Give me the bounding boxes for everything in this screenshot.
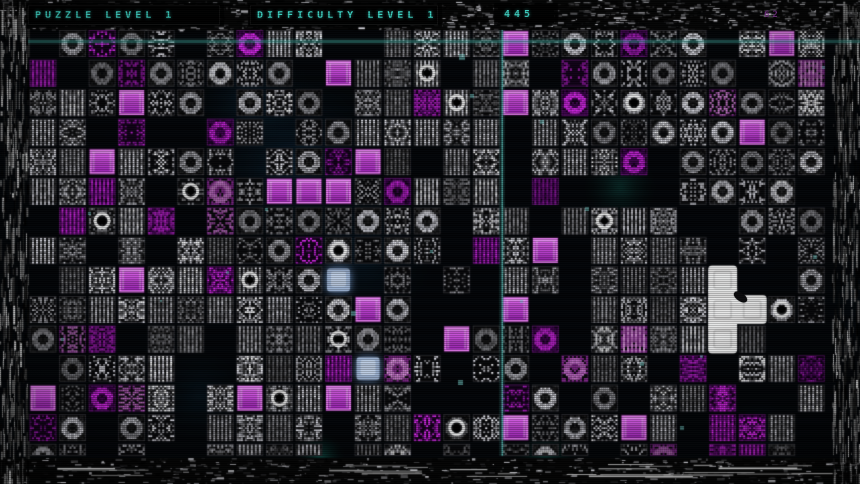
- puzzle-grid[interactable]: [0, 0, 860, 484]
- move-counter: 445: [498, 5, 554, 23]
- selection-cursor[interactable]: [709, 266, 796, 353]
- game-screen: PUZZLE LEVEL 1 DIFFICULTY LEVEL 1 445 62: [0, 0, 860, 484]
- difficulty-level-label: DIFFICULTY LEVEL 1: [257, 10, 437, 21]
- puzzle-level-box: PUZZLE LEVEL 1: [28, 5, 220, 25]
- puzzle-level-label: PUZZLE LEVEL 1: [35, 10, 175, 21]
- difficulty-level-box: DIFFICULTY LEVEL 1: [250, 5, 438, 25]
- aux-counter: 62: [764, 10, 781, 20]
